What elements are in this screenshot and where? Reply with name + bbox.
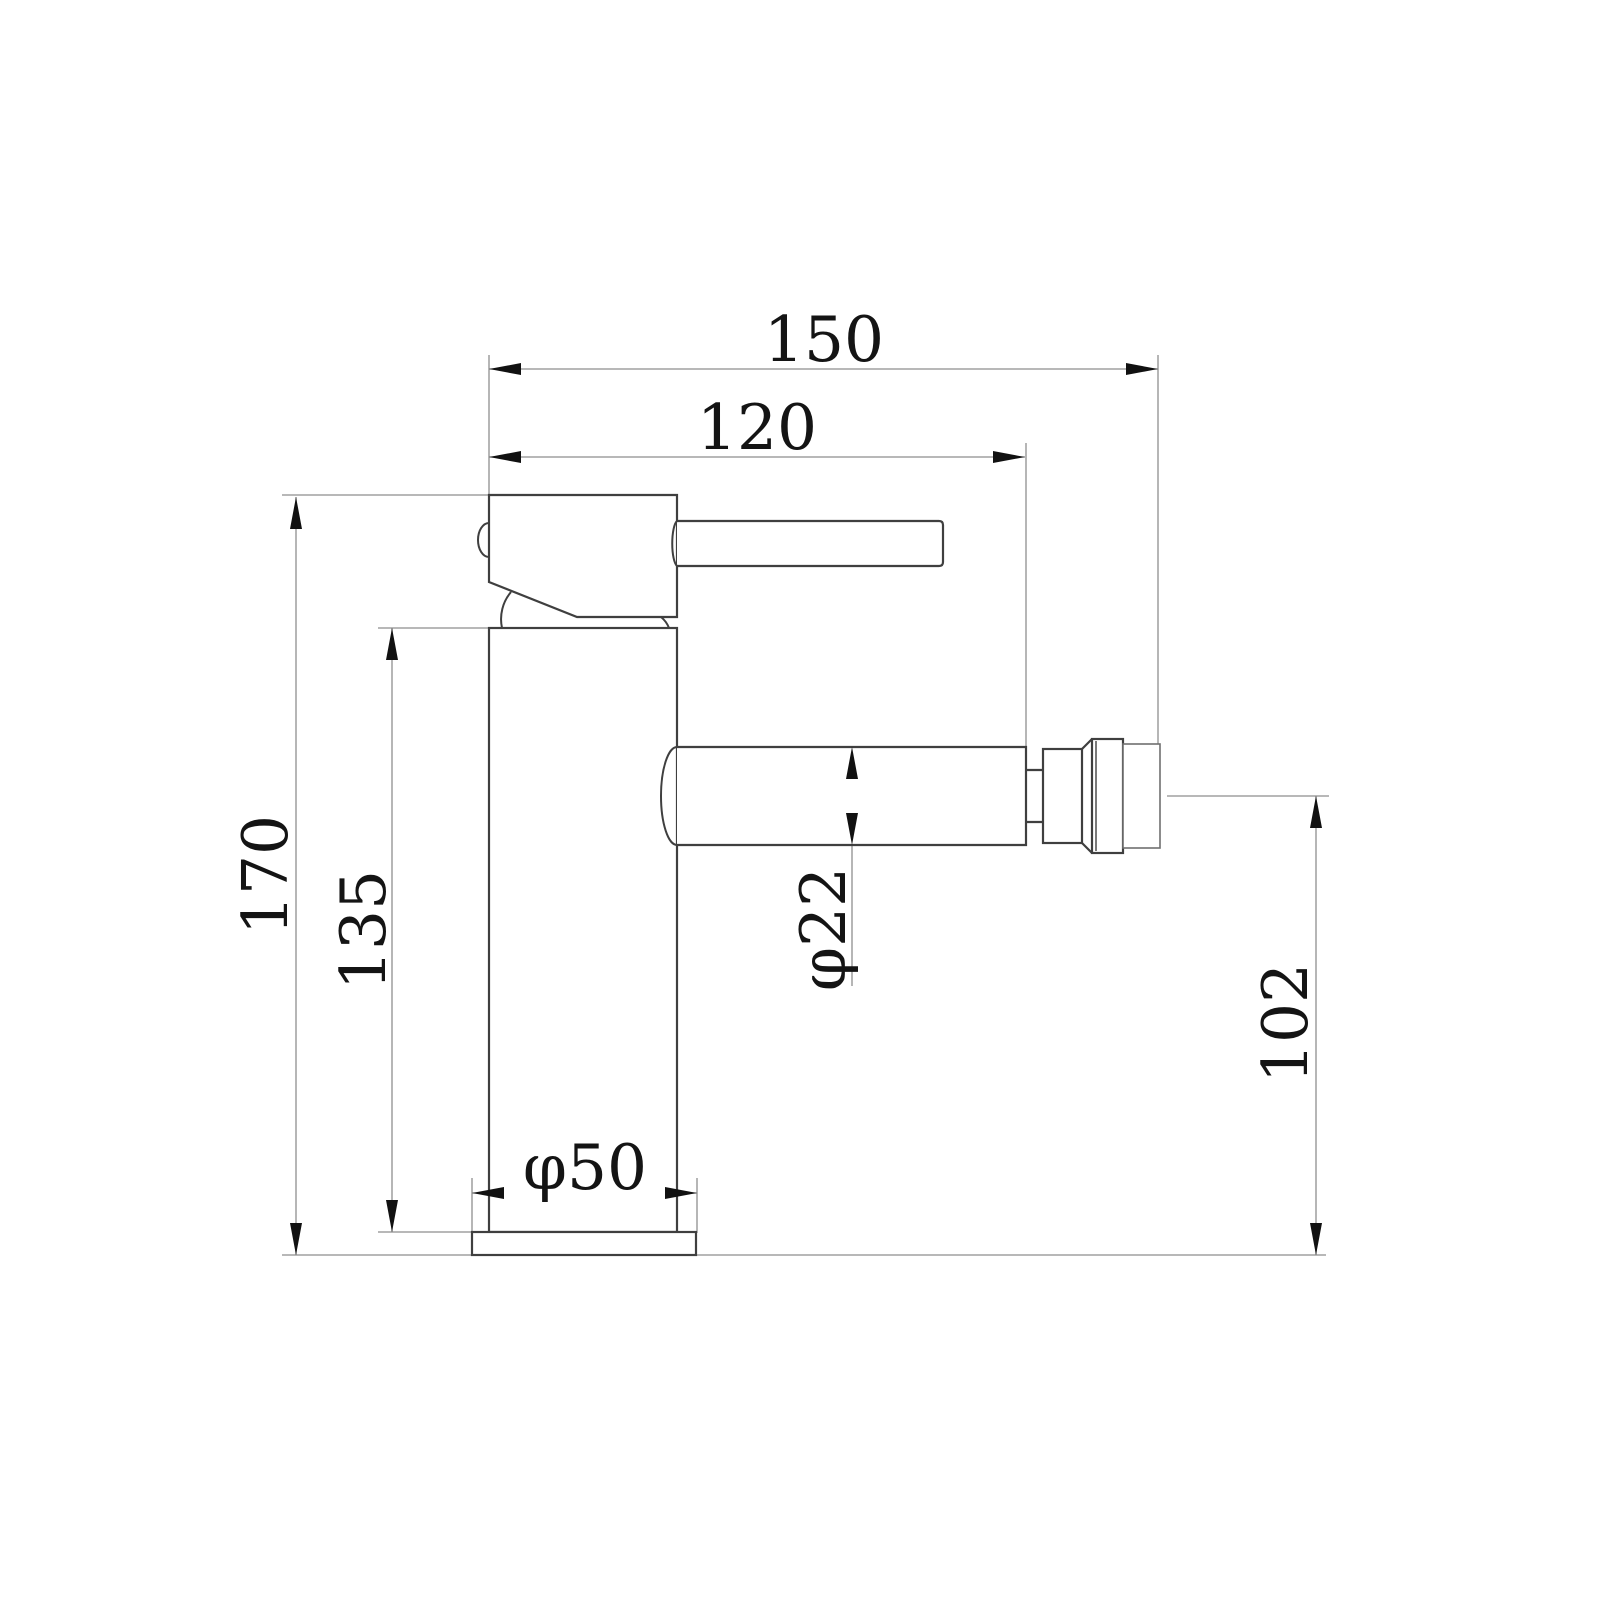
dim-label-total-height: 170 — [229, 815, 302, 935]
mixer-head — [489, 495, 677, 617]
dim-label-spout-center-height: 102 — [1249, 963, 1322, 1083]
arrow-170-top — [290, 497, 302, 529]
dim-label-column-height: 135 — [327, 870, 400, 990]
dim-label-base-diameter: φ50 — [523, 1131, 647, 1204]
arrow-120-right — [993, 451, 1025, 463]
arrow-135-bottom — [386, 1200, 398, 1232]
arrow-120-left — [489, 451, 521, 463]
faucet-technical-drawing: 150 120 170 135 φ22 φ50 102 — [0, 0, 1600, 1600]
arrow-base-dia-right — [665, 1187, 697, 1199]
arrow-102-bottom — [1310, 1223, 1322, 1255]
base-plate — [472, 1232, 696, 1255]
technical-drawing-page: 150 120 170 135 φ22 φ50 102 — [0, 0, 1600, 1600]
column-top-left-fillet — [501, 592, 511, 628]
arrow-170-bottom — [290, 1223, 302, 1255]
arrow-102-top — [1310, 796, 1322, 828]
head-left-bulge-arc — [478, 523, 489, 557]
dim-label-spout-diameter: φ22 — [787, 867, 860, 991]
arrow-150-right — [1126, 363, 1158, 375]
handle-lever — [677, 521, 943, 566]
arrow-135-top — [386, 628, 398, 660]
arrow-150-left — [489, 363, 521, 375]
column-top-right-fillet — [661, 617, 669, 628]
aerator-cylinder — [1043, 749, 1082, 843]
dim-label-total-width: 150 — [764, 303, 884, 376]
aerator-end-cap — [1123, 744, 1160, 848]
dim-label-spout-reach: 120 — [697, 391, 817, 464]
